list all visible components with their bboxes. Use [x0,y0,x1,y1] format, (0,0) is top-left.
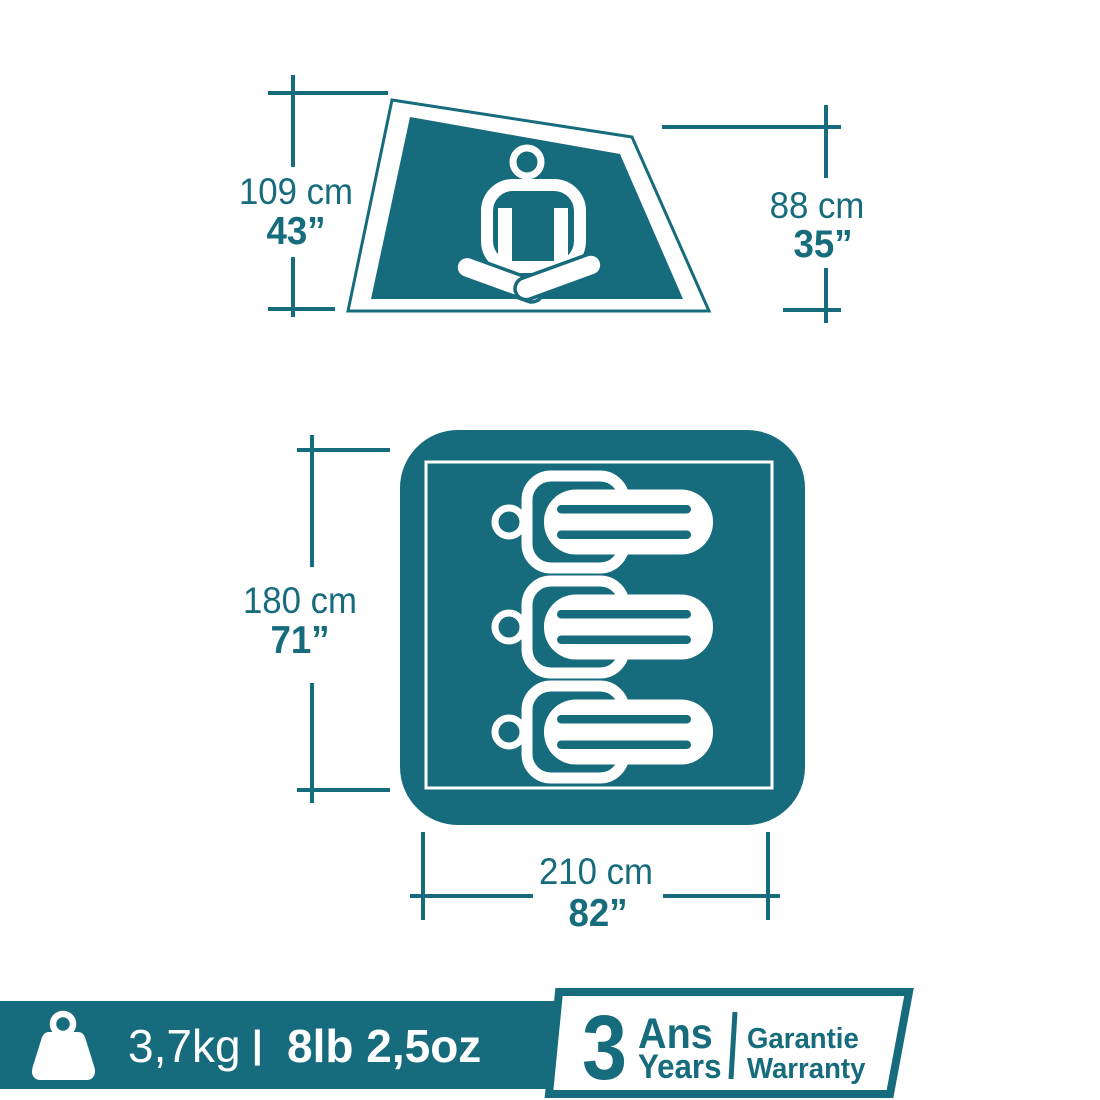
tent-floorplan [400,430,805,825]
height-right-imperial: 35” [793,225,852,265]
weight-imperial-label: 8lb 2,5oz [287,1023,481,1070]
tent-side-view [348,100,709,311]
diagram-canvas [0,0,1100,1100]
weight-separator: | [252,1026,263,1065]
warranty-duration: 3 [582,1002,624,1096]
floor-width-metric: 180 cm [243,582,357,620]
floor-length-metric: 210 cm [539,853,653,891]
sleeping-person-icon-2 [495,581,713,673]
height-right-metric: 88 cm [770,187,865,225]
sleeping-person-icon-3 [495,686,713,778]
floor-length-imperial: 82” [568,894,627,934]
height-left-metric: 109 cm [239,173,353,211]
product-spec-diagram: 109 cm 43” 88 cm 35” 180 cm 71” 210 cm 8… [0,0,1100,1100]
warranty-label-en: Warranty [747,1055,865,1085]
meditator-arm-left [498,208,512,266]
weight-metric-label: 3,7kg [128,1023,241,1070]
floor-width-imperial: 71” [270,621,329,661]
meditator-arm-right [554,208,568,266]
warranty-label-fr: Garantie [747,1025,859,1055]
height-left-imperial: 43” [266,212,325,252]
meditator-head [513,148,541,176]
sleeping-person-icon-1 [495,476,713,568]
warranty-unit-en: Years [638,1050,722,1085]
